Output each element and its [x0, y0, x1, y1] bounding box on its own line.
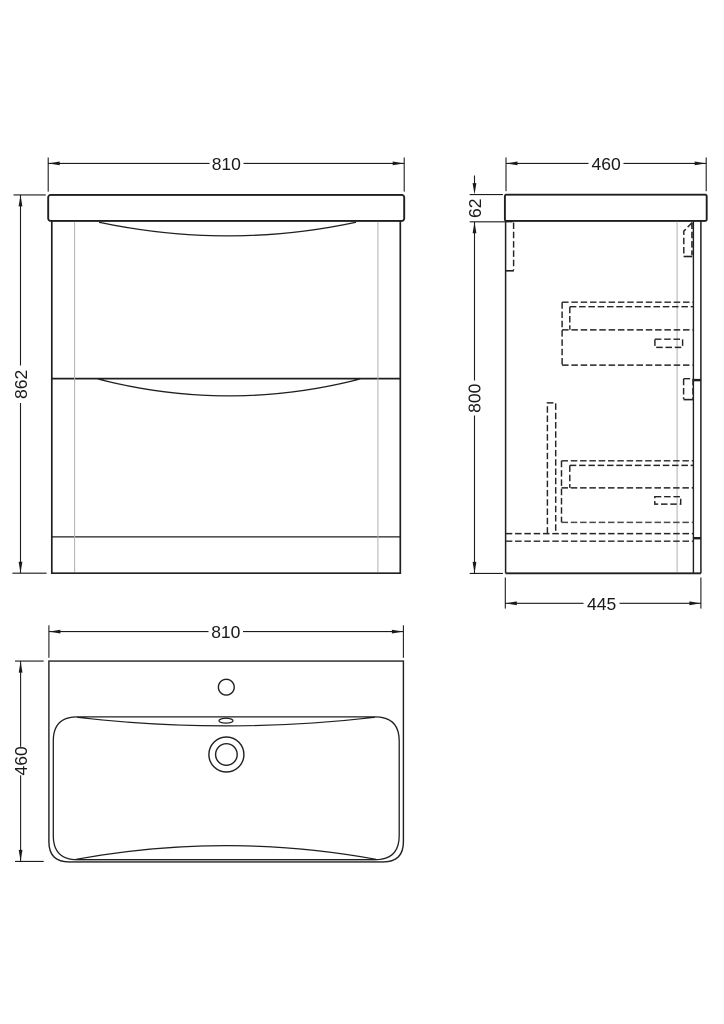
svg-text:800: 800 [465, 383, 485, 412]
svg-text:810: 810 [211, 622, 240, 642]
svg-text:460: 460 [591, 154, 620, 174]
svg-text:810: 810 [212, 154, 241, 174]
svg-text:862: 862 [11, 370, 31, 399]
svg-text:62: 62 [465, 199, 485, 218]
svg-text:445: 445 [587, 594, 616, 614]
svg-text:460: 460 [11, 746, 31, 775]
